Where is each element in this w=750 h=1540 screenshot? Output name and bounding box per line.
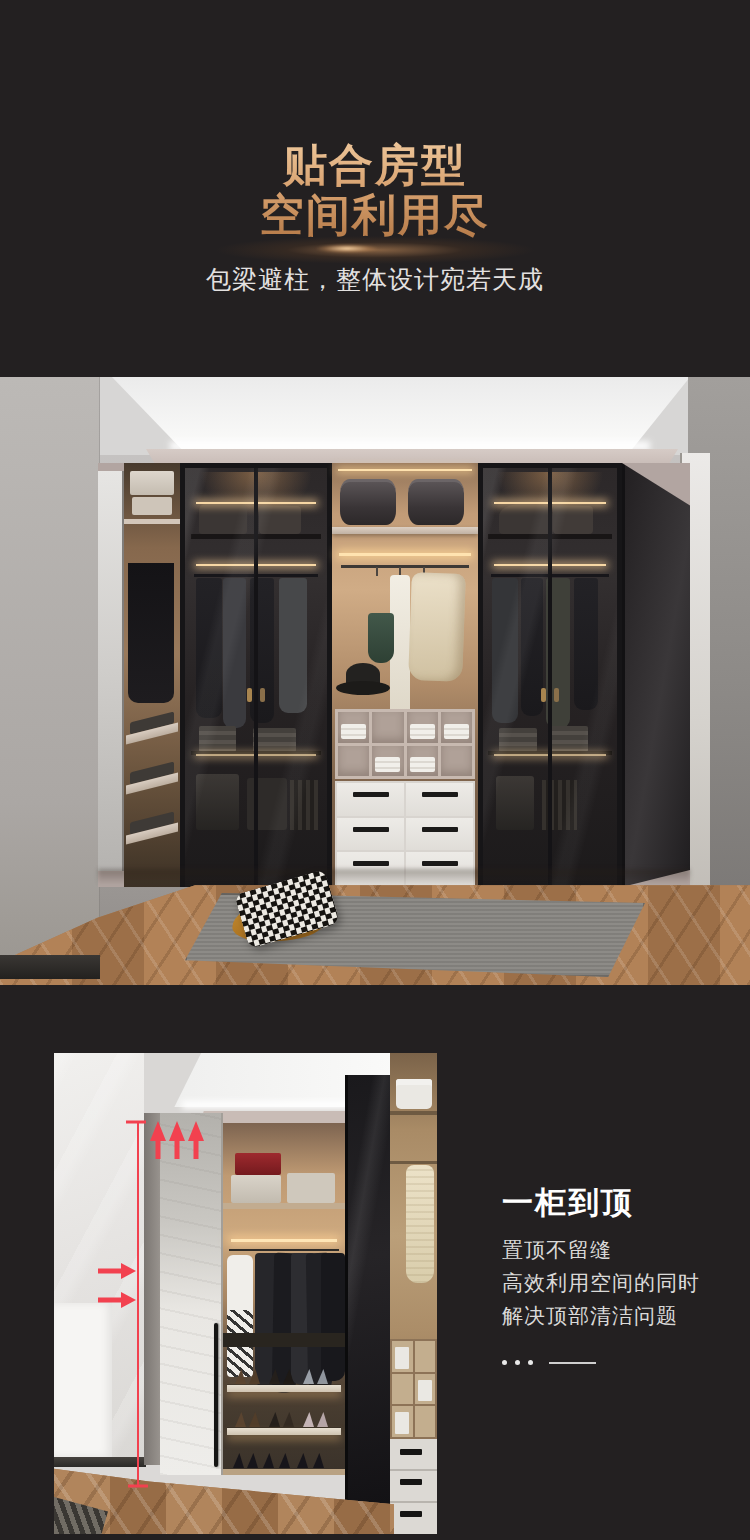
feature-closet-photo bbox=[54, 1053, 437, 1534]
drawer bbox=[406, 783, 473, 816]
cube-cell bbox=[372, 746, 403, 777]
cube-cell bbox=[338, 746, 369, 777]
glass-reflection bbox=[483, 468, 617, 887]
up-arrow-icon bbox=[150, 1121, 166, 1159]
mirror-panel bbox=[98, 471, 124, 871]
hanging-cream-coat bbox=[408, 572, 466, 682]
decor-dot bbox=[528, 1360, 533, 1365]
right-arrow-icon bbox=[98, 1292, 136, 1308]
black-hat-brim bbox=[336, 681, 390, 695]
up-arrow-icon bbox=[169, 1121, 185, 1159]
decor-dot bbox=[502, 1360, 507, 1365]
hero-subtitle: 包梁避柱，整体设计宛若天成 bbox=[0, 263, 750, 296]
drawer bbox=[406, 818, 473, 851]
green-bag bbox=[368, 613, 394, 663]
left-wall bbox=[0, 377, 100, 985]
shelf bbox=[332, 527, 478, 534]
hero-title: 贴合房型 空间利用尽 bbox=[0, 140, 750, 240]
hanger-hook bbox=[376, 567, 378, 576]
up-arrow-icon bbox=[188, 1121, 204, 1159]
main-closet-photo bbox=[0, 377, 750, 985]
cube-cell bbox=[372, 712, 403, 743]
hero-title-line-2: 空间利用尽 bbox=[0, 190, 750, 240]
led-strip bbox=[339, 553, 470, 556]
hero-title-line-1: 贴合房型 bbox=[0, 140, 750, 190]
cube-cell bbox=[407, 712, 438, 743]
red-measure-annotations bbox=[54, 1053, 437, 1534]
shelf bbox=[124, 519, 180, 524]
drawer bbox=[337, 783, 404, 816]
unit-floor-shadow bbox=[98, 869, 690, 885]
decor-dots-and-line bbox=[502, 1360, 596, 1365]
cube-cell bbox=[338, 712, 369, 743]
glass-door-left bbox=[180, 463, 332, 887]
feature-description-line: 高效利用空间的同时 bbox=[502, 1266, 700, 1299]
right-arrows bbox=[98, 1263, 136, 1308]
glass-reflection bbox=[185, 468, 327, 887]
clothes-rod bbox=[341, 565, 469, 568]
storage-box bbox=[132, 497, 172, 515]
product-detail-page: 贴合房型 空间利用尽 包梁避柱，整体设计宛若天成 bbox=[0, 0, 750, 1540]
cube-cell bbox=[407, 746, 438, 777]
feature-title: 一柜到顶 bbox=[502, 1182, 634, 1224]
right-arrow-icon bbox=[98, 1263, 136, 1279]
cube-cell bbox=[441, 746, 472, 777]
center-open-section bbox=[332, 463, 478, 887]
decor-line bbox=[549, 1362, 596, 1364]
feature-description-line: 置顶不留缝 bbox=[502, 1233, 700, 1266]
ceiling-light-panel bbox=[112, 377, 690, 449]
light-flare-core bbox=[315, 244, 379, 253]
feature-description: 置顶不留缝 高效利用空间的同时 解决顶部清洁问题 bbox=[502, 1233, 700, 1332]
hanging-dark-clothes bbox=[128, 563, 174, 703]
drawer bbox=[337, 818, 404, 851]
up-arrows bbox=[150, 1121, 204, 1159]
open-shelf-column bbox=[124, 463, 180, 887]
cube-organizer bbox=[335, 709, 475, 779]
led-strip bbox=[338, 469, 472, 471]
feature-description-line: 解决顶部清洁问题 bbox=[502, 1299, 700, 1332]
decor-dot bbox=[515, 1360, 520, 1365]
cube-cell bbox=[441, 712, 472, 743]
storage-box bbox=[130, 471, 174, 495]
glass-door-right bbox=[478, 463, 622, 887]
hat-box bbox=[340, 479, 396, 525]
left-baseboard bbox=[0, 955, 100, 979]
hat-box bbox=[408, 479, 464, 525]
corner-glass-panel bbox=[622, 463, 690, 887]
wardrobe-unit bbox=[98, 463, 690, 887]
